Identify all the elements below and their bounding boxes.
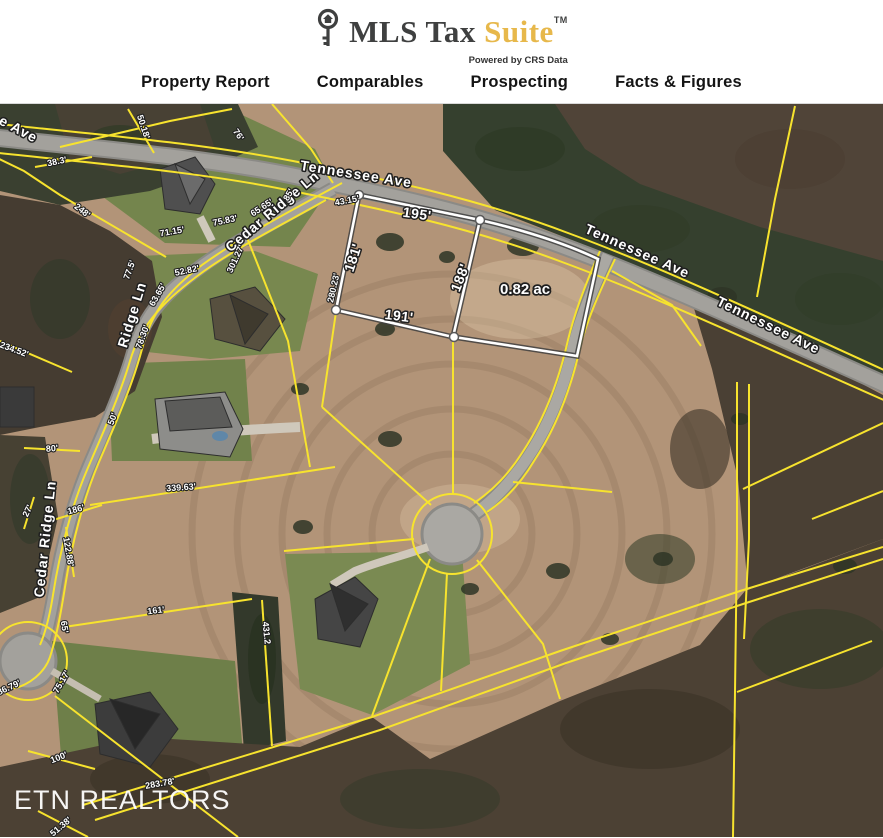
logo-trademark: TM [554, 15, 568, 25]
dimension-label: 161' [147, 604, 165, 616]
main-nav: Property Report Comparables Prospecting … [0, 60, 883, 104]
key-icon [315, 8, 341, 55]
tab-comparables[interactable]: Comparables [317, 73, 424, 92]
tab-property-report[interactable]: Property Report [141, 73, 270, 92]
header: MLS Tax SuiteTM Powered by CRS Data Prop… [0, 0, 883, 104]
mls-tax-suite-page: MLS Tax SuiteTM Powered by CRS Data Prop… [0, 0, 883, 838]
tab-facts-figures[interactable]: Facts & Figures [615, 73, 742, 92]
tab-prospecting[interactable]: Prospecting [471, 73, 569, 92]
aerial-parcel-map: e AveTennessee AveTennessee AveTennessee… [0, 104, 883, 837]
logo-gold: Suite [484, 14, 554, 49]
dimension-label: 65' [59, 620, 71, 633]
brand: MLS Tax SuiteTM Powered by CRS Data [0, 0, 883, 56]
dimension-label: 80' [45, 443, 58, 454]
logo-dark: MLS Tax [349, 14, 476, 49]
dimension-label: 339.63' [166, 481, 196, 493]
logo-text: MLS Tax SuiteTM [349, 14, 568, 50]
logo-tagline: Powered by CRS Data [469, 55, 568, 66]
watermark: ETN REALTORS [14, 785, 231, 815]
map-canvas: e AveTennessee AveTennessee AveTennessee… [0, 104, 883, 837]
selected-parcel-area-label: 0.82 ac [500, 281, 550, 298]
cul-de-sac-center [422, 504, 482, 564]
